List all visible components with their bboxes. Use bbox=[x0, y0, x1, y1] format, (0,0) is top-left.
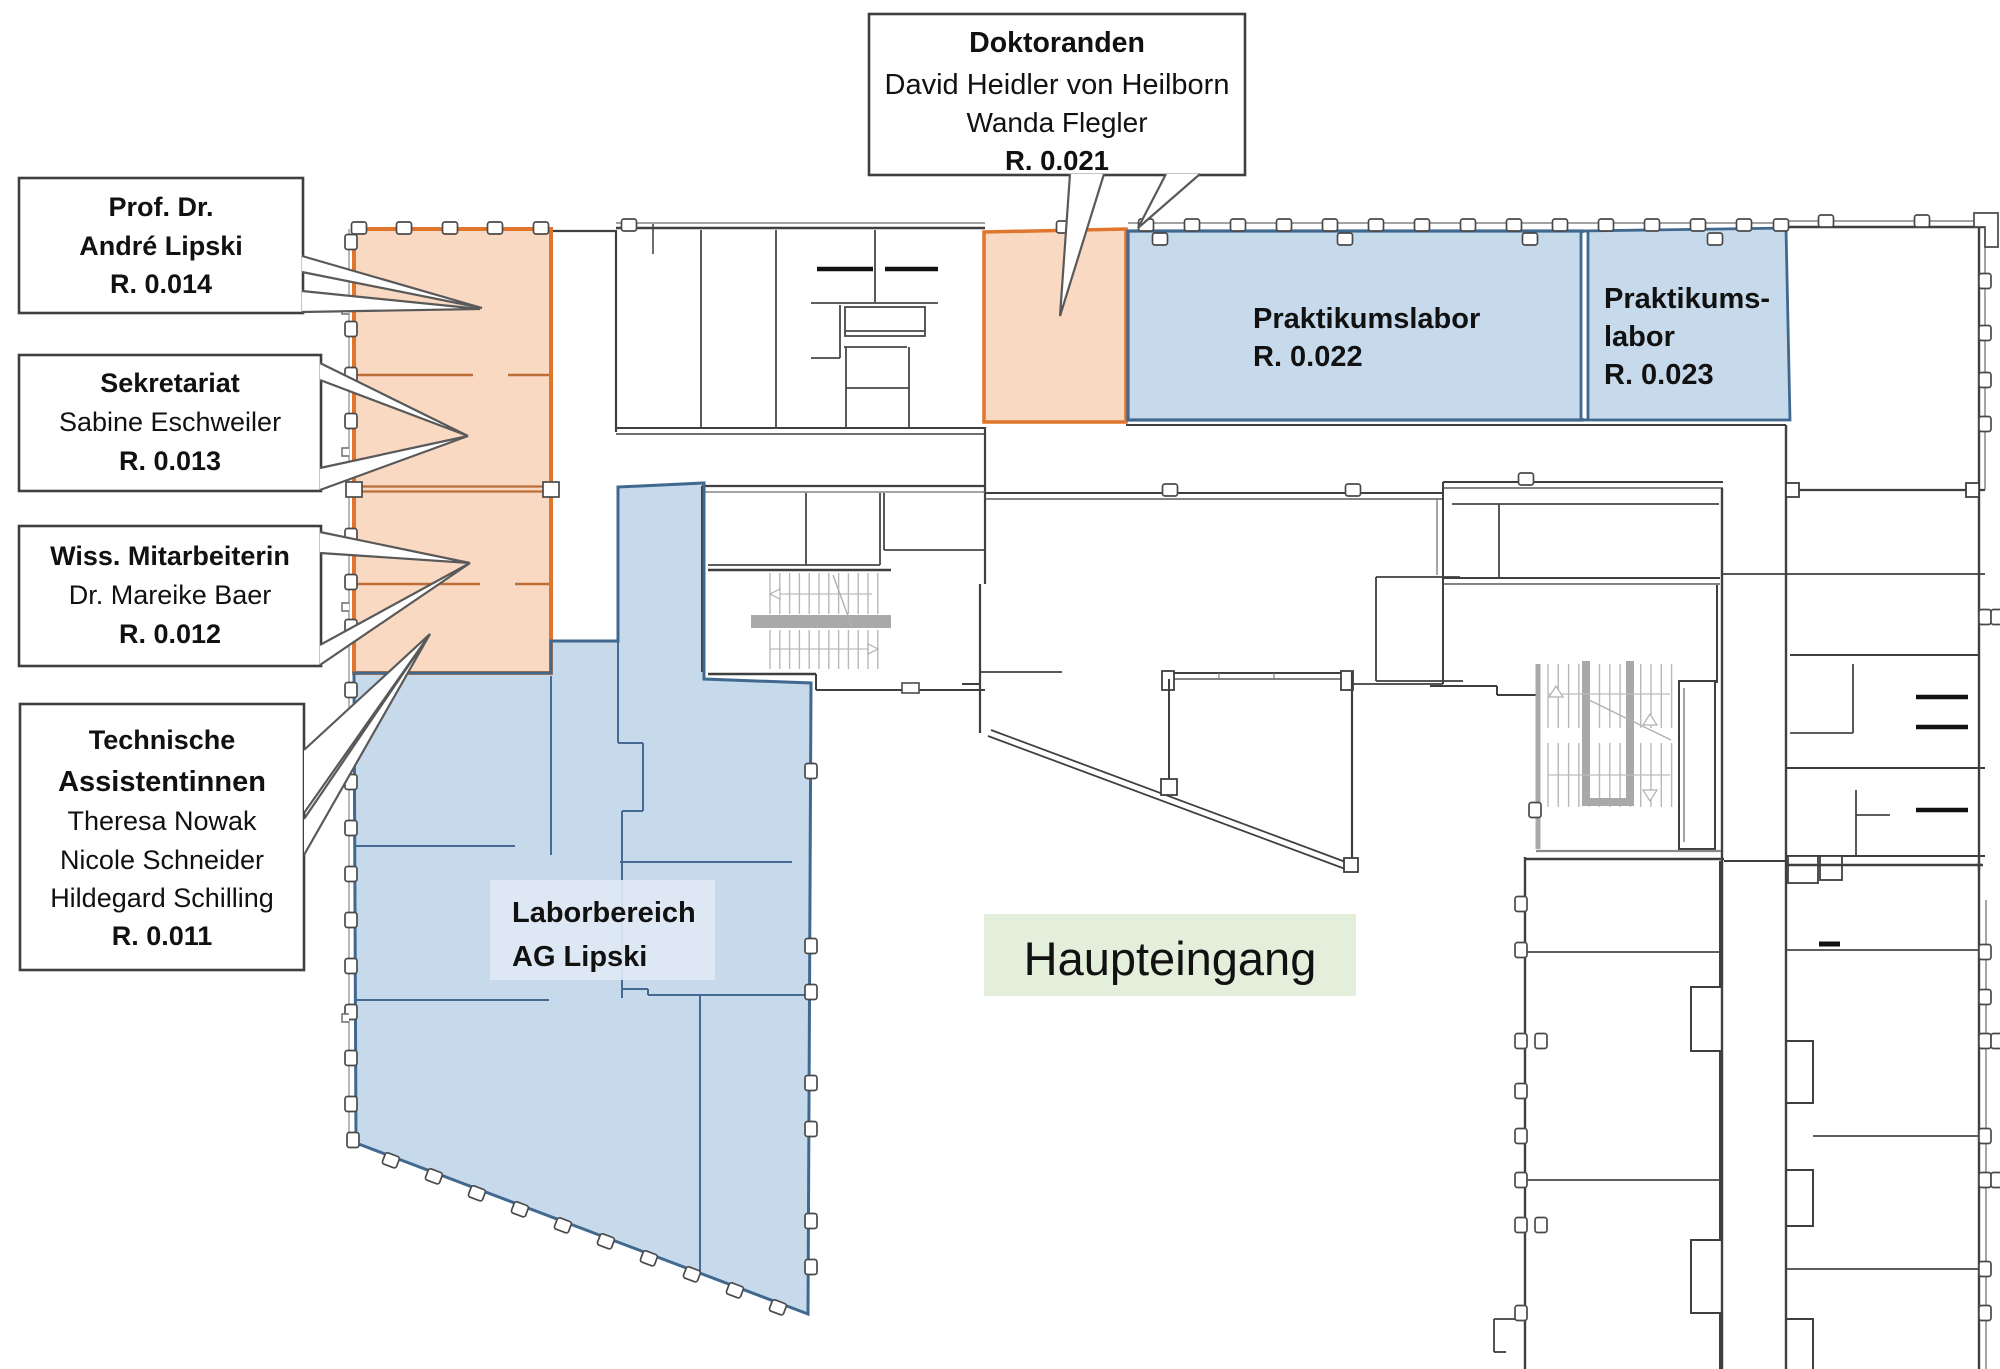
svg-text:Sabine Eschweiler: Sabine Eschweiler bbox=[59, 407, 281, 437]
svg-text:R. 0.013: R. 0.013 bbox=[119, 446, 221, 476]
svg-text:Laborbereich: Laborbereich bbox=[512, 897, 696, 929]
svg-text:Theresa Nowak: Theresa Nowak bbox=[67, 806, 257, 836]
svg-text:André Lipski: André Lipski bbox=[79, 231, 243, 261]
svg-text:Nicole Schneider: Nicole Schneider bbox=[60, 845, 264, 875]
svg-text:Wiss. Mitarbeiterin: Wiss. Mitarbeiterin bbox=[50, 541, 290, 571]
svg-text:Haupteingang: Haupteingang bbox=[1024, 932, 1317, 985]
svg-text:Wanda Flegler: Wanda Flegler bbox=[966, 107, 1147, 138]
svg-text:David Heidler von Heilborn: David Heidler von Heilborn bbox=[885, 69, 1230, 101]
svg-text:Dr. Mareike Baer: Dr. Mareike Baer bbox=[69, 580, 272, 610]
svg-text:labor: labor bbox=[1604, 321, 1675, 353]
svg-text:Sekretariat: Sekretariat bbox=[100, 368, 240, 398]
svg-text:Technische: Technische bbox=[89, 725, 236, 755]
svg-text:R. 0.021: R. 0.021 bbox=[1005, 145, 1109, 176]
svg-text:R. 0.012: R. 0.012 bbox=[119, 619, 221, 649]
svg-text:R. 0.023: R. 0.023 bbox=[1604, 359, 1714, 391]
svg-text:R. 0.011: R. 0.011 bbox=[112, 921, 213, 951]
svg-text:AG Lipski: AG Lipski bbox=[512, 941, 647, 973]
svg-text:Doktoranden: Doktoranden bbox=[969, 27, 1145, 59]
svg-text:R. 0.022: R. 0.022 bbox=[1253, 341, 1363, 373]
svg-text:Assistentinnen: Assistentinnen bbox=[58, 766, 266, 798]
svg-text:Hildegard Schilling: Hildegard Schilling bbox=[50, 883, 274, 913]
svg-text:R. 0.014: R. 0.014 bbox=[110, 269, 212, 299]
svg-text:Prof. Dr.: Prof. Dr. bbox=[108, 192, 213, 222]
svg-text:Praktikumslabor: Praktikumslabor bbox=[1253, 303, 1480, 335]
svg-text:Praktikums-: Praktikums- bbox=[1604, 283, 1770, 315]
